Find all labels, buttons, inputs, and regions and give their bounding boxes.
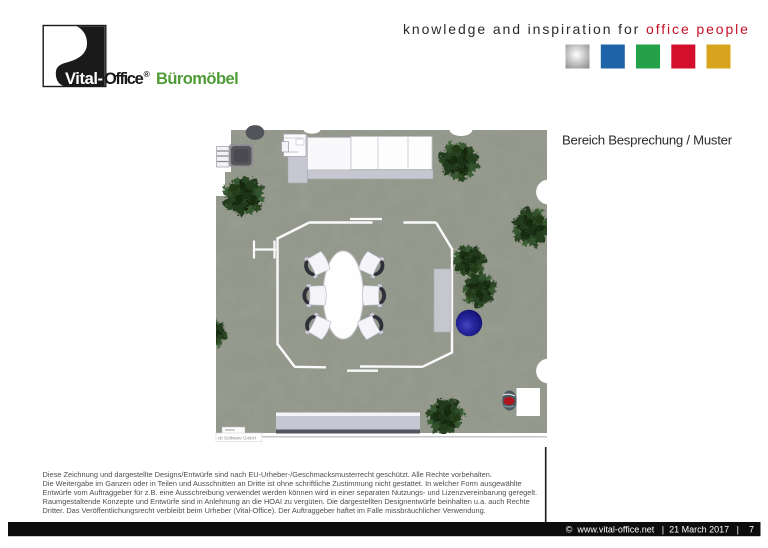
svg-text:knowledge and inspiration for: knowledge and inspiration for office peo… bbox=[403, 21, 750, 37]
svg-text:Diese Zeichnung und dargestell: Diese Zeichnung und dargestellte Designs… bbox=[43, 470, 492, 479]
svg-text:Office: Office bbox=[104, 70, 144, 88]
svg-text:Die Weitergabe im Ganzen oder: Die Weitergabe im Ganzen oder in Teilen … bbox=[43, 479, 522, 488]
svg-text:Vital-: Vital- bbox=[65, 70, 103, 88]
svg-text:Entwürfe vom Auftraggeber für: Entwürfe vom Auftraggeber für z.B. eine … bbox=[43, 488, 538, 497]
svg-text:®: ® bbox=[144, 69, 151, 79]
svg-text:Büromöbel: Büromöbel bbox=[156, 70, 238, 88]
svg-text:Raumgestaltende Konzepte und E: Raumgestaltende Konzepte und Entwürfe si… bbox=[43, 497, 530, 506]
svg-text:© www.vital-office.net | 2: © www.vital-office.net | 21 March 2017 |… bbox=[566, 525, 754, 535]
svg-text:Dritter. Das Veröffentlichungs: Dritter. Das Veröffentlichungsrecht verb… bbox=[43, 506, 486, 515]
svg-text:cb Software GmbH: cb Software GmbH bbox=[218, 436, 256, 441]
svg-text:Bereich Besprechung / Muster: Bereich Besprechung / Muster bbox=[562, 133, 733, 148]
